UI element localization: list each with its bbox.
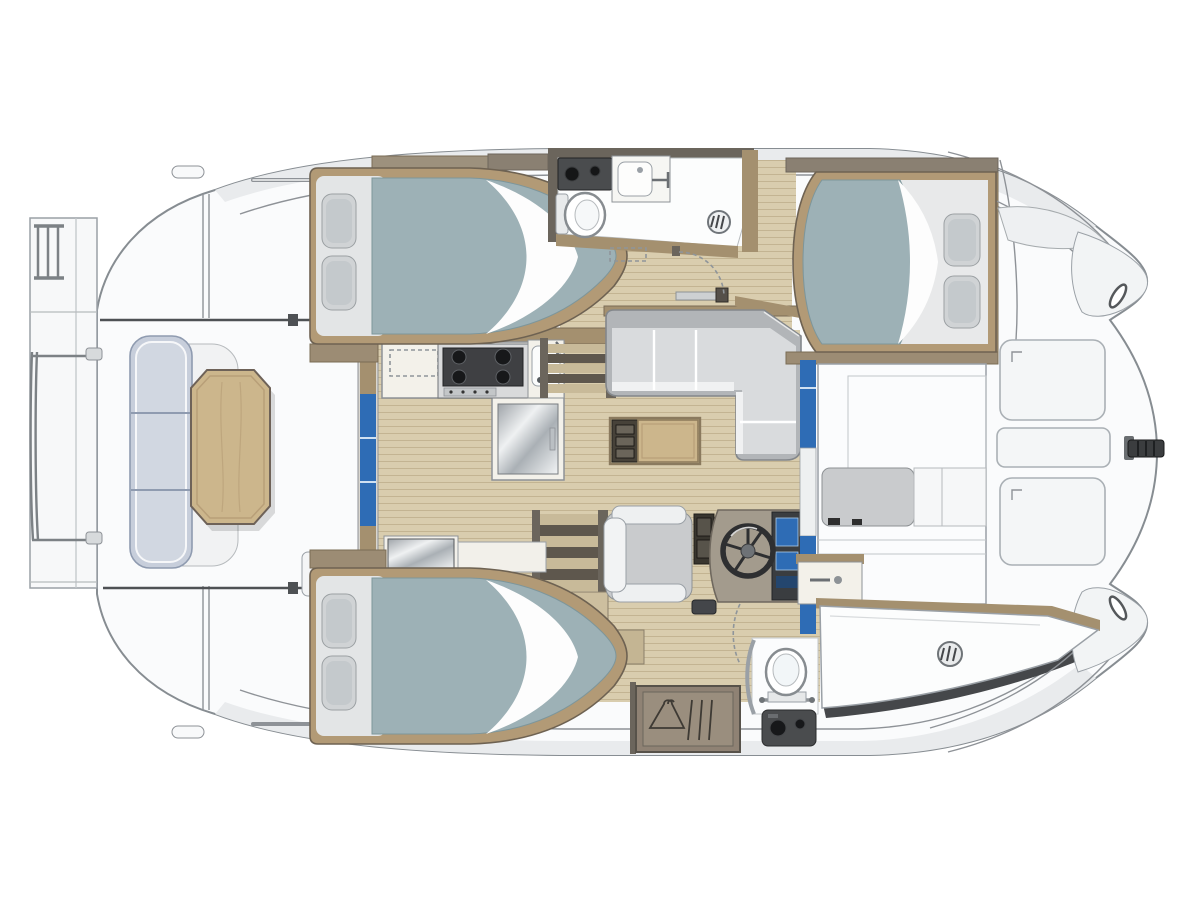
washer-unit bbox=[558, 158, 612, 190]
wardrobe bbox=[630, 682, 740, 754]
deck-plan: Power catamaran interior deck plan, over… bbox=[0, 0, 1200, 900]
roof-hatch bbox=[172, 726, 204, 738]
stairs-port bbox=[540, 338, 616, 398]
cabin-top-locker bbox=[488, 154, 548, 170]
cockpit-bench bbox=[130, 336, 192, 568]
duvet bbox=[803, 180, 918, 344]
stern-cleat bbox=[86, 348, 102, 360]
toilet bbox=[556, 193, 605, 237]
cockpit-table bbox=[191, 370, 275, 531]
stern-platform bbox=[30, 218, 102, 588]
sliding-door bbox=[360, 394, 376, 526]
helm-seat bbox=[604, 506, 692, 602]
deck-hatch bbox=[997, 340, 1110, 565]
head-wall bbox=[742, 150, 758, 252]
vanity-mirror bbox=[388, 539, 454, 569]
bow-cleat bbox=[1124, 436, 1164, 460]
door-leaf bbox=[676, 292, 718, 300]
refrigerator bbox=[498, 404, 558, 474]
coffee-table bbox=[610, 418, 700, 464]
cabin-wall bbox=[310, 344, 378, 362]
single-berth bbox=[822, 468, 914, 526]
washbasin bbox=[798, 562, 862, 604]
instrument-screen bbox=[776, 552, 798, 570]
forward-cabin bbox=[786, 158, 998, 364]
cabin-wall bbox=[786, 158, 998, 172]
shower-drain bbox=[708, 211, 730, 233]
cabin-wall bbox=[310, 550, 386, 568]
cabinet-panel bbox=[914, 468, 942, 526]
cabinet-panel bbox=[942, 468, 986, 526]
shower-drain bbox=[938, 642, 962, 666]
toilet-area bbox=[747, 638, 818, 714]
throttle bbox=[692, 600, 716, 614]
washbasin bbox=[612, 156, 670, 202]
washer-unit bbox=[762, 710, 816, 746]
cabin-wall bbox=[786, 352, 998, 364]
roof-hatch bbox=[172, 166, 204, 178]
cooktop bbox=[438, 344, 528, 398]
stern-cleat bbox=[86, 532, 102, 544]
chartplotter-screen bbox=[776, 518, 798, 546]
